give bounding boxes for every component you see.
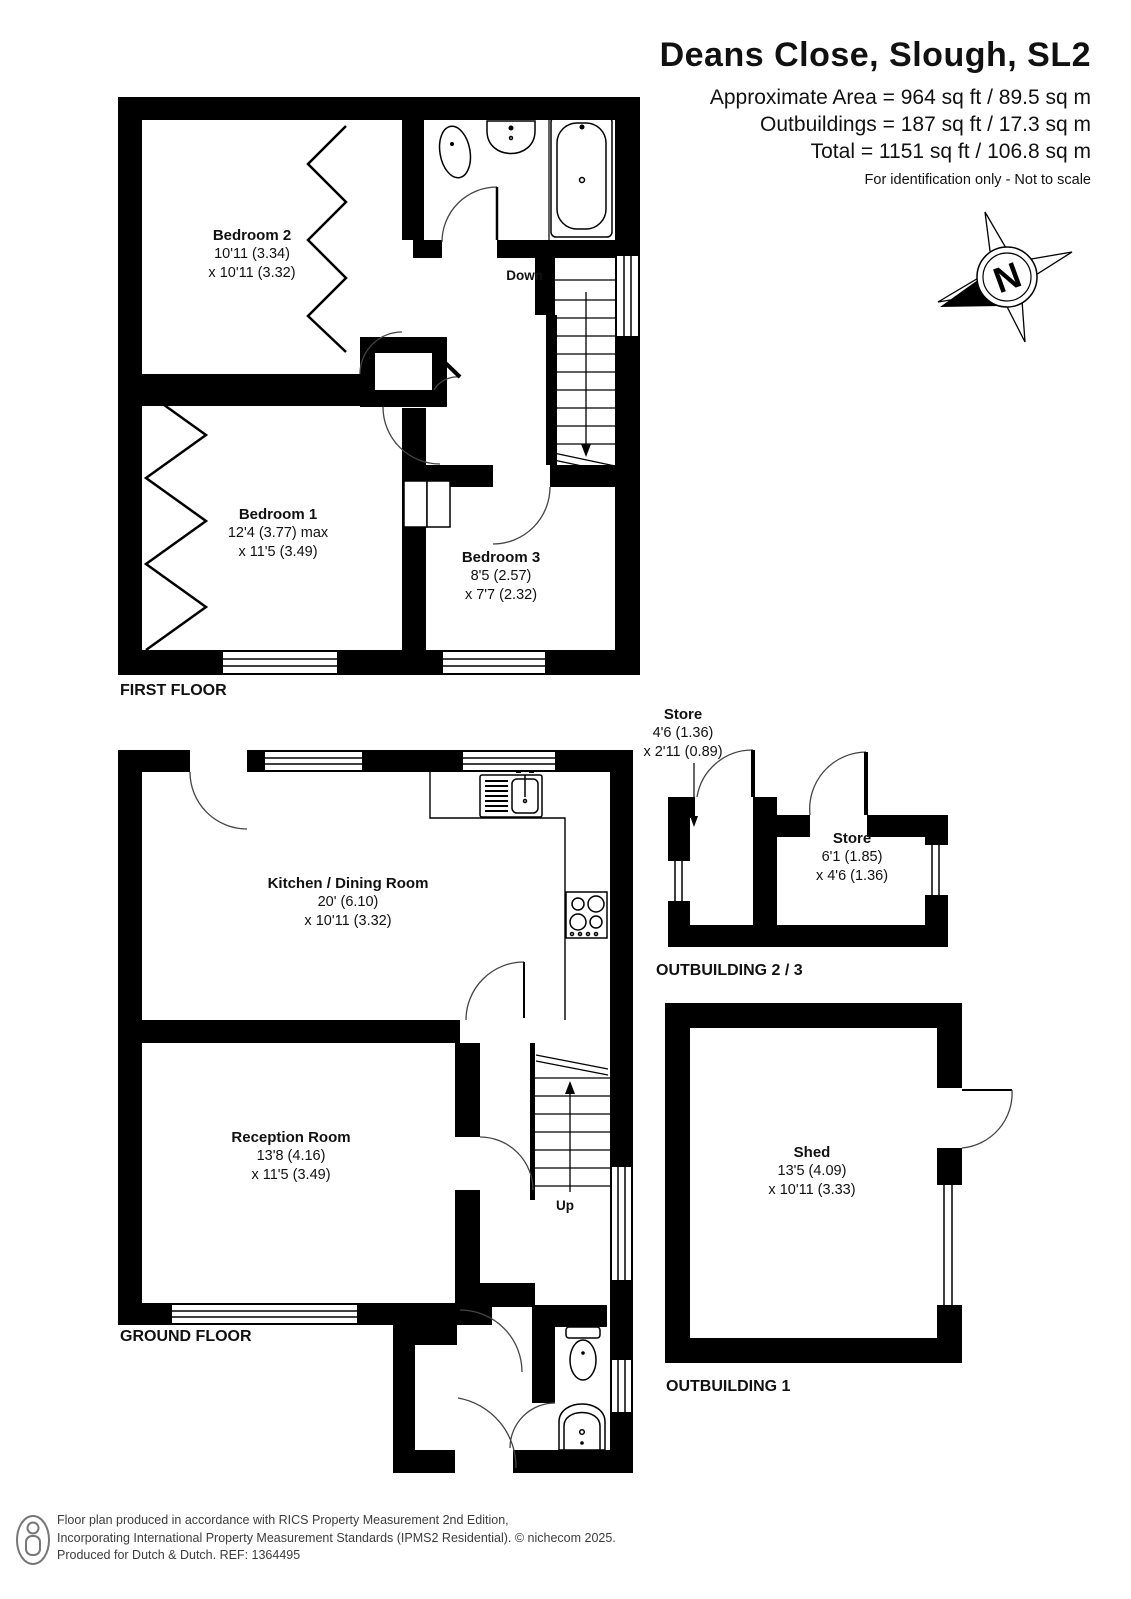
stairs-up-label: Up: [540, 1198, 590, 1213]
compass-icon: N: [938, 212, 1072, 342]
plan-header: Deans Close, Slough, SL2 Approximate Are…: [660, 36, 1091, 188]
first-floor-label: FIRST FLOOR: [120, 682, 227, 700]
wc-fixtures: [559, 1327, 605, 1450]
bathroom-fixtures: [436, 117, 612, 240]
person-icon: [17, 1516, 49, 1564]
room-label-shed: Shed 13'5 (4.09) x 10'11 (3.33): [768, 1143, 855, 1200]
floorplan-drawing: N: [0, 0, 1131, 1599]
footer-line-2: Incorporating International Property Mea…: [57, 1530, 616, 1548]
room-label-bedroom2: Bedroom 2 10'11 (3.34) x 10'11 (3.32): [208, 226, 295, 283]
cistern-icon: [566, 1327, 600, 1338]
room-label-kitchen: Kitchen / Dining Room 20' (6.10) x 10'11…: [268, 874, 429, 931]
floorplan-page: N Deans Close, Slough, SL2 Approximate A…: [0, 0, 1131, 1599]
footer-note: Floor plan produced in accordance with R…: [57, 1512, 616, 1565]
stairs-up: [535, 1055, 610, 1192]
room-label-bedroom3: Bedroom 3 8'5 (2.57) x 7'7 (2.32): [462, 548, 540, 605]
room-label-store-small: Store 4'6 (1.36) x 2'11 (0.89): [643, 705, 722, 762]
outbuilding23-label: OUTBUILDING 2 / 3: [656, 962, 803, 980]
ground-floor-label: GROUND FLOOR: [120, 1328, 252, 1346]
room-label-bedroom1: Bedroom 1 12'4 (3.77) max x 11'5 (3.49): [228, 505, 328, 562]
page-title: Deans Close, Slough, SL2: [660, 36, 1091, 75]
stairs-down: [548, 280, 615, 473]
outbuildings-area: Outbuildings = 187 sq ft / 17.3 sq m: [660, 111, 1091, 138]
disclaimer: For identification only - Not to scale: [660, 172, 1091, 188]
first-floor-plan: [118, 97, 640, 675]
door-arc-shed: [962, 1090, 1012, 1148]
stairs-up-arrow: [565, 1081, 575, 1094]
hob-icon: [566, 892, 607, 938]
total-area: Total = 1151 sq ft / 106.8 sq m: [660, 138, 1091, 165]
room-label-store-large: Store 6'1 (1.85) x 4'6 (1.36): [816, 829, 888, 886]
footer-line-3: Produced for Dutch & Dutch. REF: 1364495: [57, 1547, 616, 1565]
approximate-area: Approximate Area = 964 sq ft / 89.5 sq m: [660, 84, 1091, 111]
toilet-icon: [570, 1340, 596, 1380]
footer-line-1: Floor plan produced in accordance with R…: [57, 1512, 616, 1530]
stairs-down-label: Down: [470, 268, 543, 283]
kitchen-counter: [430, 772, 565, 1020]
room-label-reception: Reception Room 13'8 (4.16) x 11'5 (3.49): [231, 1128, 350, 1185]
sink-icon: [480, 772, 542, 817]
ground-floor-plan: [118, 750, 633, 1473]
outbuilding1-label: OUTBUILDING 1: [666, 1378, 790, 1396]
outbuilding23-plan: [668, 750, 948, 947]
bath-icon: [551, 117, 612, 237]
toilet-icon: [436, 124, 475, 180]
stairs-down-arrow: [581, 444, 591, 457]
